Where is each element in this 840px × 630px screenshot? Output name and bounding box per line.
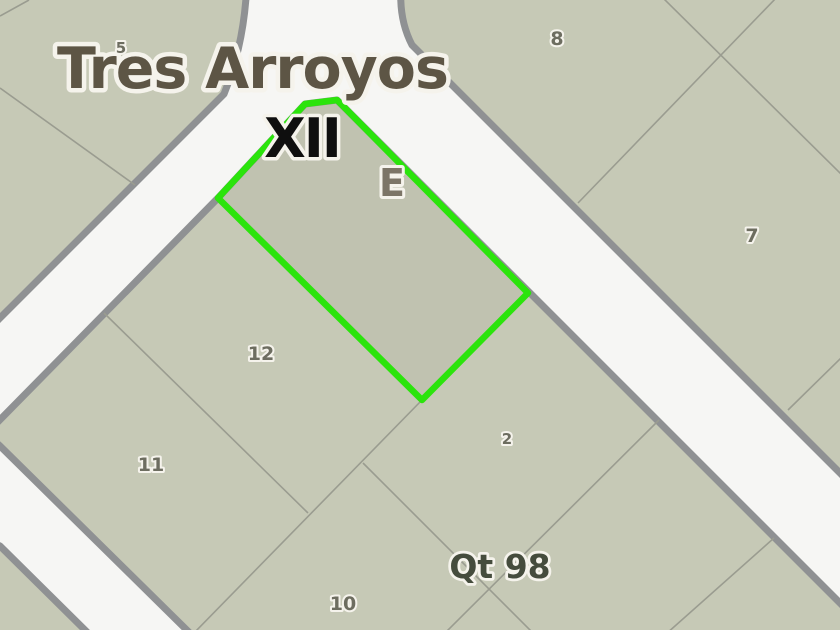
parcel-number-7: 7 <box>745 225 758 247</box>
parcel-number-12: 12 <box>248 343 274 365</box>
map-canvas: Tres Arroyos XII E Qt 98 5 8 7 12 11 2 1… <box>0 0 840 630</box>
block-roman-label: XII <box>264 107 340 170</box>
parcel-number-11: 11 <box>138 454 164 476</box>
cadastral-map: Tres Arroyos XII E Qt 98 5 8 7 12 11 2 1… <box>0 0 840 630</box>
parcel-number-2: 2 <box>502 430 512 448</box>
parcel-number-10: 10 <box>330 593 356 615</box>
quinta-label: Qt 98 <box>449 547 550 586</box>
parcel-number-5: 5 <box>116 39 126 57</box>
parcel-number-8: 8 <box>550 28 563 50</box>
highlight-parcel-letter-label: E <box>379 161 405 205</box>
